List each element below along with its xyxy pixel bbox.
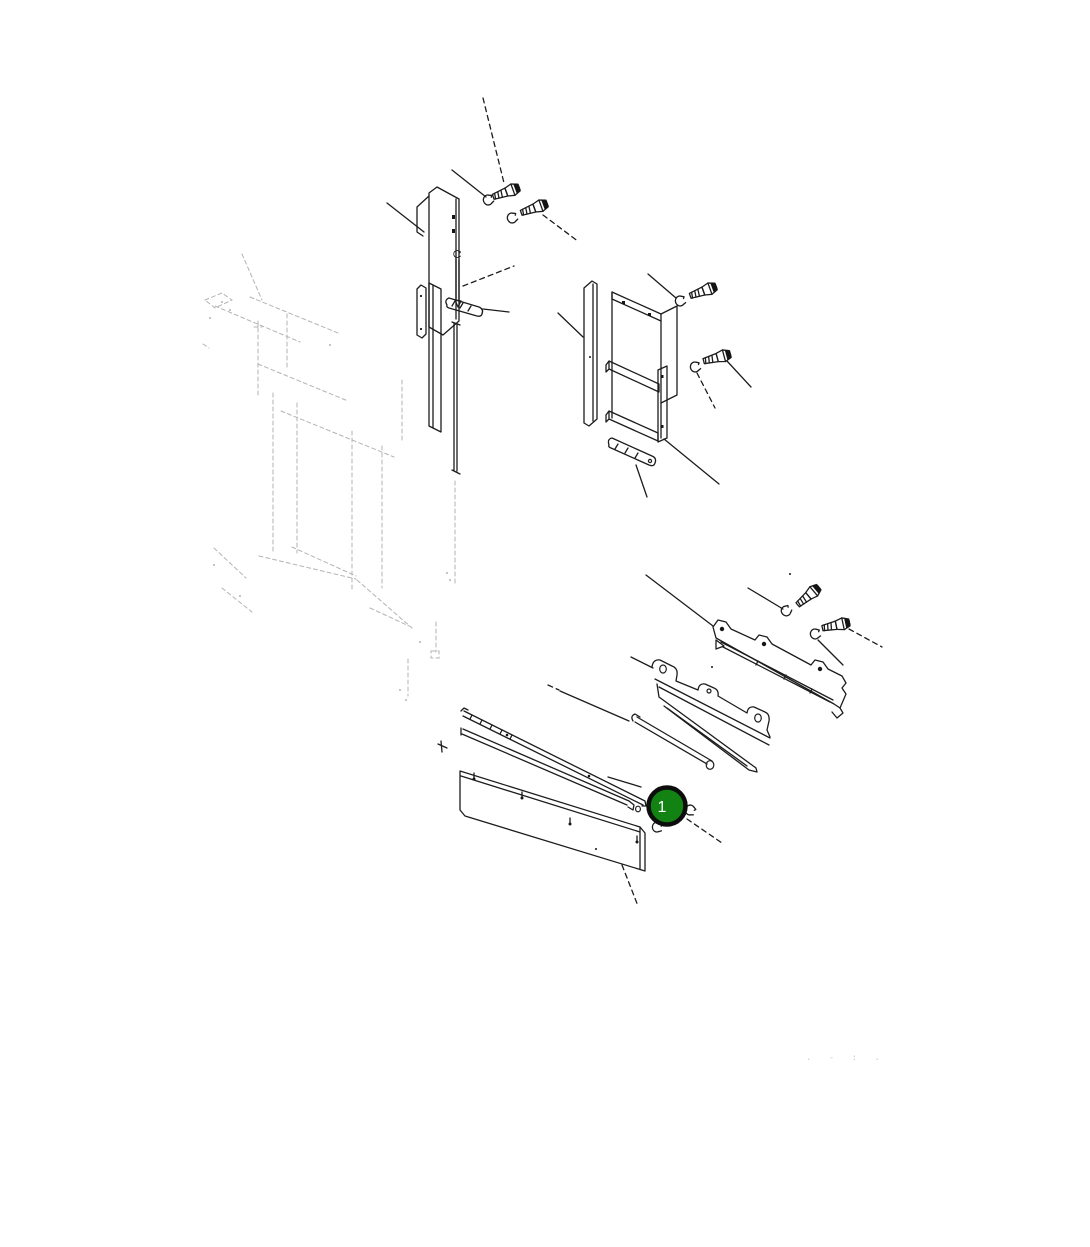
callout-1[interactable]: 1 [649,788,686,825]
diagram-canvas: 1 [0,0,1090,1247]
callout-label: 1 [658,799,667,816]
footer-marks: . - : . [806,1053,886,1063]
parts-diagram-page: 1 . - : . [0,0,1090,1247]
background [0,0,1090,1247]
callout-circle[interactable] [649,788,686,825]
